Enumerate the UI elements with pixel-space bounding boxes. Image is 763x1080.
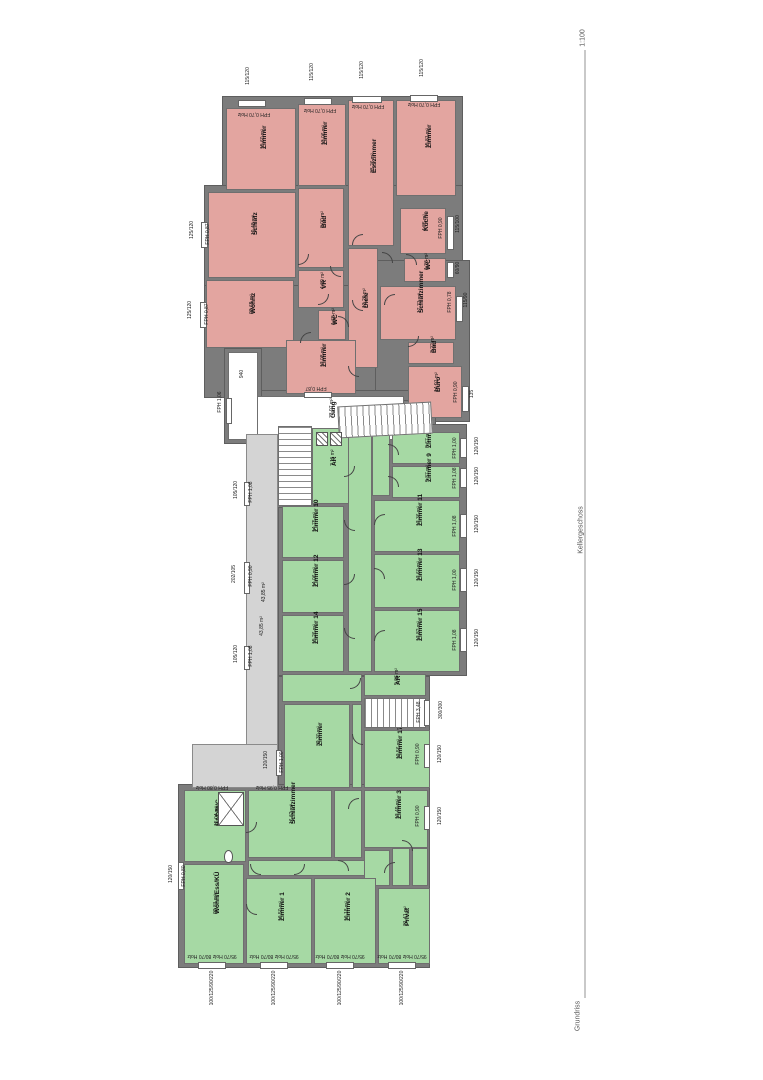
dim-label: FPH 0,80 [181, 865, 187, 886]
dim-label: FPH 0,78 [447, 291, 453, 312]
window [460, 568, 467, 592]
dim-label: FPH 1,08 [452, 467, 458, 488]
room-area: 7,11 m² [331, 449, 337, 466]
dim-label: 135 [469, 390, 475, 398]
window [460, 438, 467, 458]
room-area: 3,22 m² [431, 336, 437, 353]
floor-plan: Zimmer15,60 m²Zimmer13,06 m²Esszimmer33,… [0, 0, 763, 1080]
window [326, 962, 354, 969]
level-label: Kellergeschoss [578, 506, 585, 553]
room-area: 15,81 m² [426, 128, 432, 148]
dim-label: FPH 1,06 [217, 391, 223, 412]
window [447, 216, 454, 250]
room-schlafzimmer: Schlafzimmer16,62 m² [248, 790, 332, 858]
dim-label: 100/125/90/220 [399, 971, 405, 1006]
dim-label: 115/120 [309, 63, 315, 81]
room-area: 14,91 m² [435, 372, 441, 392]
dim-label: 940 [239, 370, 245, 378]
dim-label: 120/150 [437, 807, 443, 825]
dim-label: FPH 3,48 [416, 701, 422, 722]
window [462, 386, 469, 412]
room-area: 23,69 m² [250, 294, 256, 314]
window [424, 700, 430, 726]
dim-label: 120/150 [263, 751, 269, 769]
window [424, 744, 430, 768]
room-area: 16,18 m² [345, 901, 351, 921]
room-area: 4,85 m² [423, 214, 429, 231]
staircase [337, 402, 433, 439]
room-area: 12,56 m² [397, 739, 403, 759]
room-area: 8,00 m² [321, 211, 327, 228]
dim-label: 95/70 Holz 80/70 Holz [249, 953, 298, 959]
room-zimmer: Zimmer15,60 m² [226, 108, 296, 190]
room-zimmer-9: Zimmer 99,37 m² [392, 466, 460, 498]
dim-label: FPH 1,08 [452, 515, 458, 536]
room-ar: AR5,06 m² [364, 674, 426, 696]
room-area: 73,97 m² [330, 398, 336, 418]
storage-hatch [316, 432, 328, 446]
dim-label: FPH 1,08 [248, 645, 254, 666]
window [226, 398, 232, 424]
dim-label: 120/150 [474, 629, 480, 647]
dim-label: 300/300 [438, 701, 444, 719]
dim-label: 120/150 [474, 437, 480, 455]
window [352, 96, 382, 103]
dim-label: FPH 0,70 Holz [238, 111, 271, 117]
dim-label: 95/70 Holz 80/70 Holz [377, 953, 426, 959]
dim-label: FPH 0,90 [438, 217, 444, 238]
dim-label: 100/125/90/220 [209, 971, 215, 1006]
shower-tray [218, 792, 244, 826]
room-area: 17,71 m² [418, 293, 424, 313]
room-zimmer: Zimmer13,06 m² [298, 104, 346, 186]
room-zimmer-2: Zimmer 216,18 m² [314, 878, 376, 964]
dim-label: FPH 0,70 Holz [304, 107, 337, 113]
room-zimmer-13: Zimmer 1317,60 m² [374, 554, 460, 608]
window [447, 262, 454, 278]
dim-label: 115/100 [455, 215, 461, 233]
room-area: 22,81 m² [214, 894, 220, 914]
room-area: 32,30 m² [317, 726, 323, 746]
room-area: 17,82 m² [417, 621, 423, 641]
dim-label: FPH 0,70 Holz [352, 103, 385, 109]
dim-label: FPH 0,87 [204, 303, 210, 324]
room-area: 21,41 m² [404, 906, 410, 926]
room-zimmer-10: Zimmer 1014,75 m² [282, 506, 344, 558]
dim-label: 115/90 [463, 293, 469, 308]
window [304, 392, 332, 398]
dim-label: 43,85 m² [259, 616, 265, 636]
dim-label: FPH 1,08 [452, 629, 458, 650]
drawing-caption: Grundriss [575, 1001, 582, 1031]
room-area: 17,60 m² [417, 561, 423, 581]
dim-label: FPH 1,00 [452, 437, 458, 458]
dim-label: 60/90 [455, 262, 461, 275]
room-area: 14,75 m² [313, 512, 319, 532]
room-zimmer-14: Zimmer 1415,26 m² [282, 615, 344, 672]
window [424, 806, 430, 830]
room-zimmer-11: Zimmer 1117,36 m² [374, 500, 460, 552]
dim-label: 120/150 [168, 865, 174, 883]
dim-label: FPH 1,08 [248, 481, 254, 502]
room-area: 9,37 m² [426, 465, 432, 482]
room-area: 15,26 m² [313, 624, 319, 644]
room-area: 13,06 m² [322, 125, 328, 145]
dim-label: 120/150 [437, 745, 443, 763]
room-zimmer: Zimmer32,30 m² [284, 704, 350, 788]
dim-label: 95/70 Holz 80/70 Holz [187, 953, 236, 959]
dim-label: 120/150 [474, 569, 480, 587]
room-area: 1,26 m² [425, 253, 431, 270]
dim-label: FPH 1,00 [279, 751, 285, 772]
room-corridor [228, 352, 258, 440]
room-area: 43,85 m² [262, 582, 268, 602]
dim-label: FPH 0,87 [305, 385, 326, 391]
room-area: 13,20 m² [363, 288, 369, 308]
dim-label: 105/120 [233, 645, 239, 663]
room-area: 16,62 m² [290, 804, 296, 824]
dim-label: 105/120 [233, 481, 239, 499]
room-bad: Bad3,22 m² [408, 342, 454, 364]
window [238, 100, 266, 107]
dim-label: FPH 0,70 Holz [408, 101, 441, 107]
room-area: 4,69 m² [321, 272, 327, 289]
dim-label: 120/150 [474, 467, 480, 485]
staircase [278, 426, 312, 506]
dim-label: 115/120 [359, 61, 365, 79]
dim-label: 100/125/90/220 [337, 971, 343, 1006]
room-corridor [352, 704, 362, 788]
room-area: 19,48 m² [252, 215, 258, 235]
room-wohnz: Wohnz23,69 m² [206, 280, 294, 348]
dim-label: 95/70 Holz 80/70 Holz [315, 953, 364, 959]
dim-label: FPH 0,90 [248, 565, 254, 586]
dim-label: FPH 0,90 [453, 381, 459, 402]
room-area: 1,65 m² [332, 308, 338, 325]
room-area: 17,49 m² [396, 799, 402, 819]
room-area: 33,26 m² [371, 153, 377, 173]
room-zimmer-15: Zimmer 1517,82 m² [374, 610, 460, 672]
window [304, 98, 332, 105]
dim-label: 115/120 [245, 67, 251, 85]
window [198, 962, 226, 969]
dim-label: FPH 0,90 [415, 805, 421, 826]
room-area: 16,50 m² [279, 901, 285, 921]
room-zimmer-1: Zimmer 116,50 m² [246, 878, 312, 964]
room-area: 17,08 m² [321, 347, 327, 367]
dim-label: FPH 1,00 [452, 569, 458, 590]
room-wohn-ess-k-: Wohn/Ess/KÜ22,81 m² [184, 864, 244, 964]
dim-label: 125/120 [187, 301, 193, 319]
dim-label: FPH 0,80 Holz [196, 784, 229, 790]
dim-label: 120/150 [474, 515, 480, 533]
scale-label: 1:100 [580, 29, 587, 47]
room-zimmer: Zimmer15,81 m² [396, 100, 456, 196]
window [456, 296, 463, 322]
room-schlafz: Schlafz19,48 m² [208, 192, 296, 278]
room-esszimmer: Esszimmer33,26 m² [348, 100, 394, 246]
room-area: 14,06 m² [313, 567, 319, 587]
room-area: 5,06 m² [395, 668, 401, 685]
dim-label: FPH 0,95 Holz [256, 784, 289, 790]
dim-label: 115/120 [419, 59, 425, 77]
wc-toilet [224, 850, 233, 863]
dim-label: FPH 0,87 [205, 223, 211, 244]
drawing-sheet: Zimmer15,60 m²Zimmer13,06 m²Esszimmer33,… [0, 0, 763, 1080]
window [460, 514, 467, 538]
room-area: 15,60 m² [261, 129, 267, 149]
dim-label: 125/120 [189, 221, 195, 239]
dim-label: 100/125/90/220 [271, 971, 277, 1006]
window [260, 962, 288, 969]
room-area: 17,36 m² [417, 506, 423, 526]
room-corridor [412, 848, 428, 886]
window [388, 962, 416, 969]
dim-label: 202/105 [231, 565, 237, 583]
dim-label: FPH 0,90 [415, 743, 421, 764]
storage-hatch [330, 432, 342, 446]
window [460, 628, 467, 652]
window [460, 468, 467, 488]
room-zimmer-12: Zimmer 1214,06 m² [282, 560, 344, 613]
